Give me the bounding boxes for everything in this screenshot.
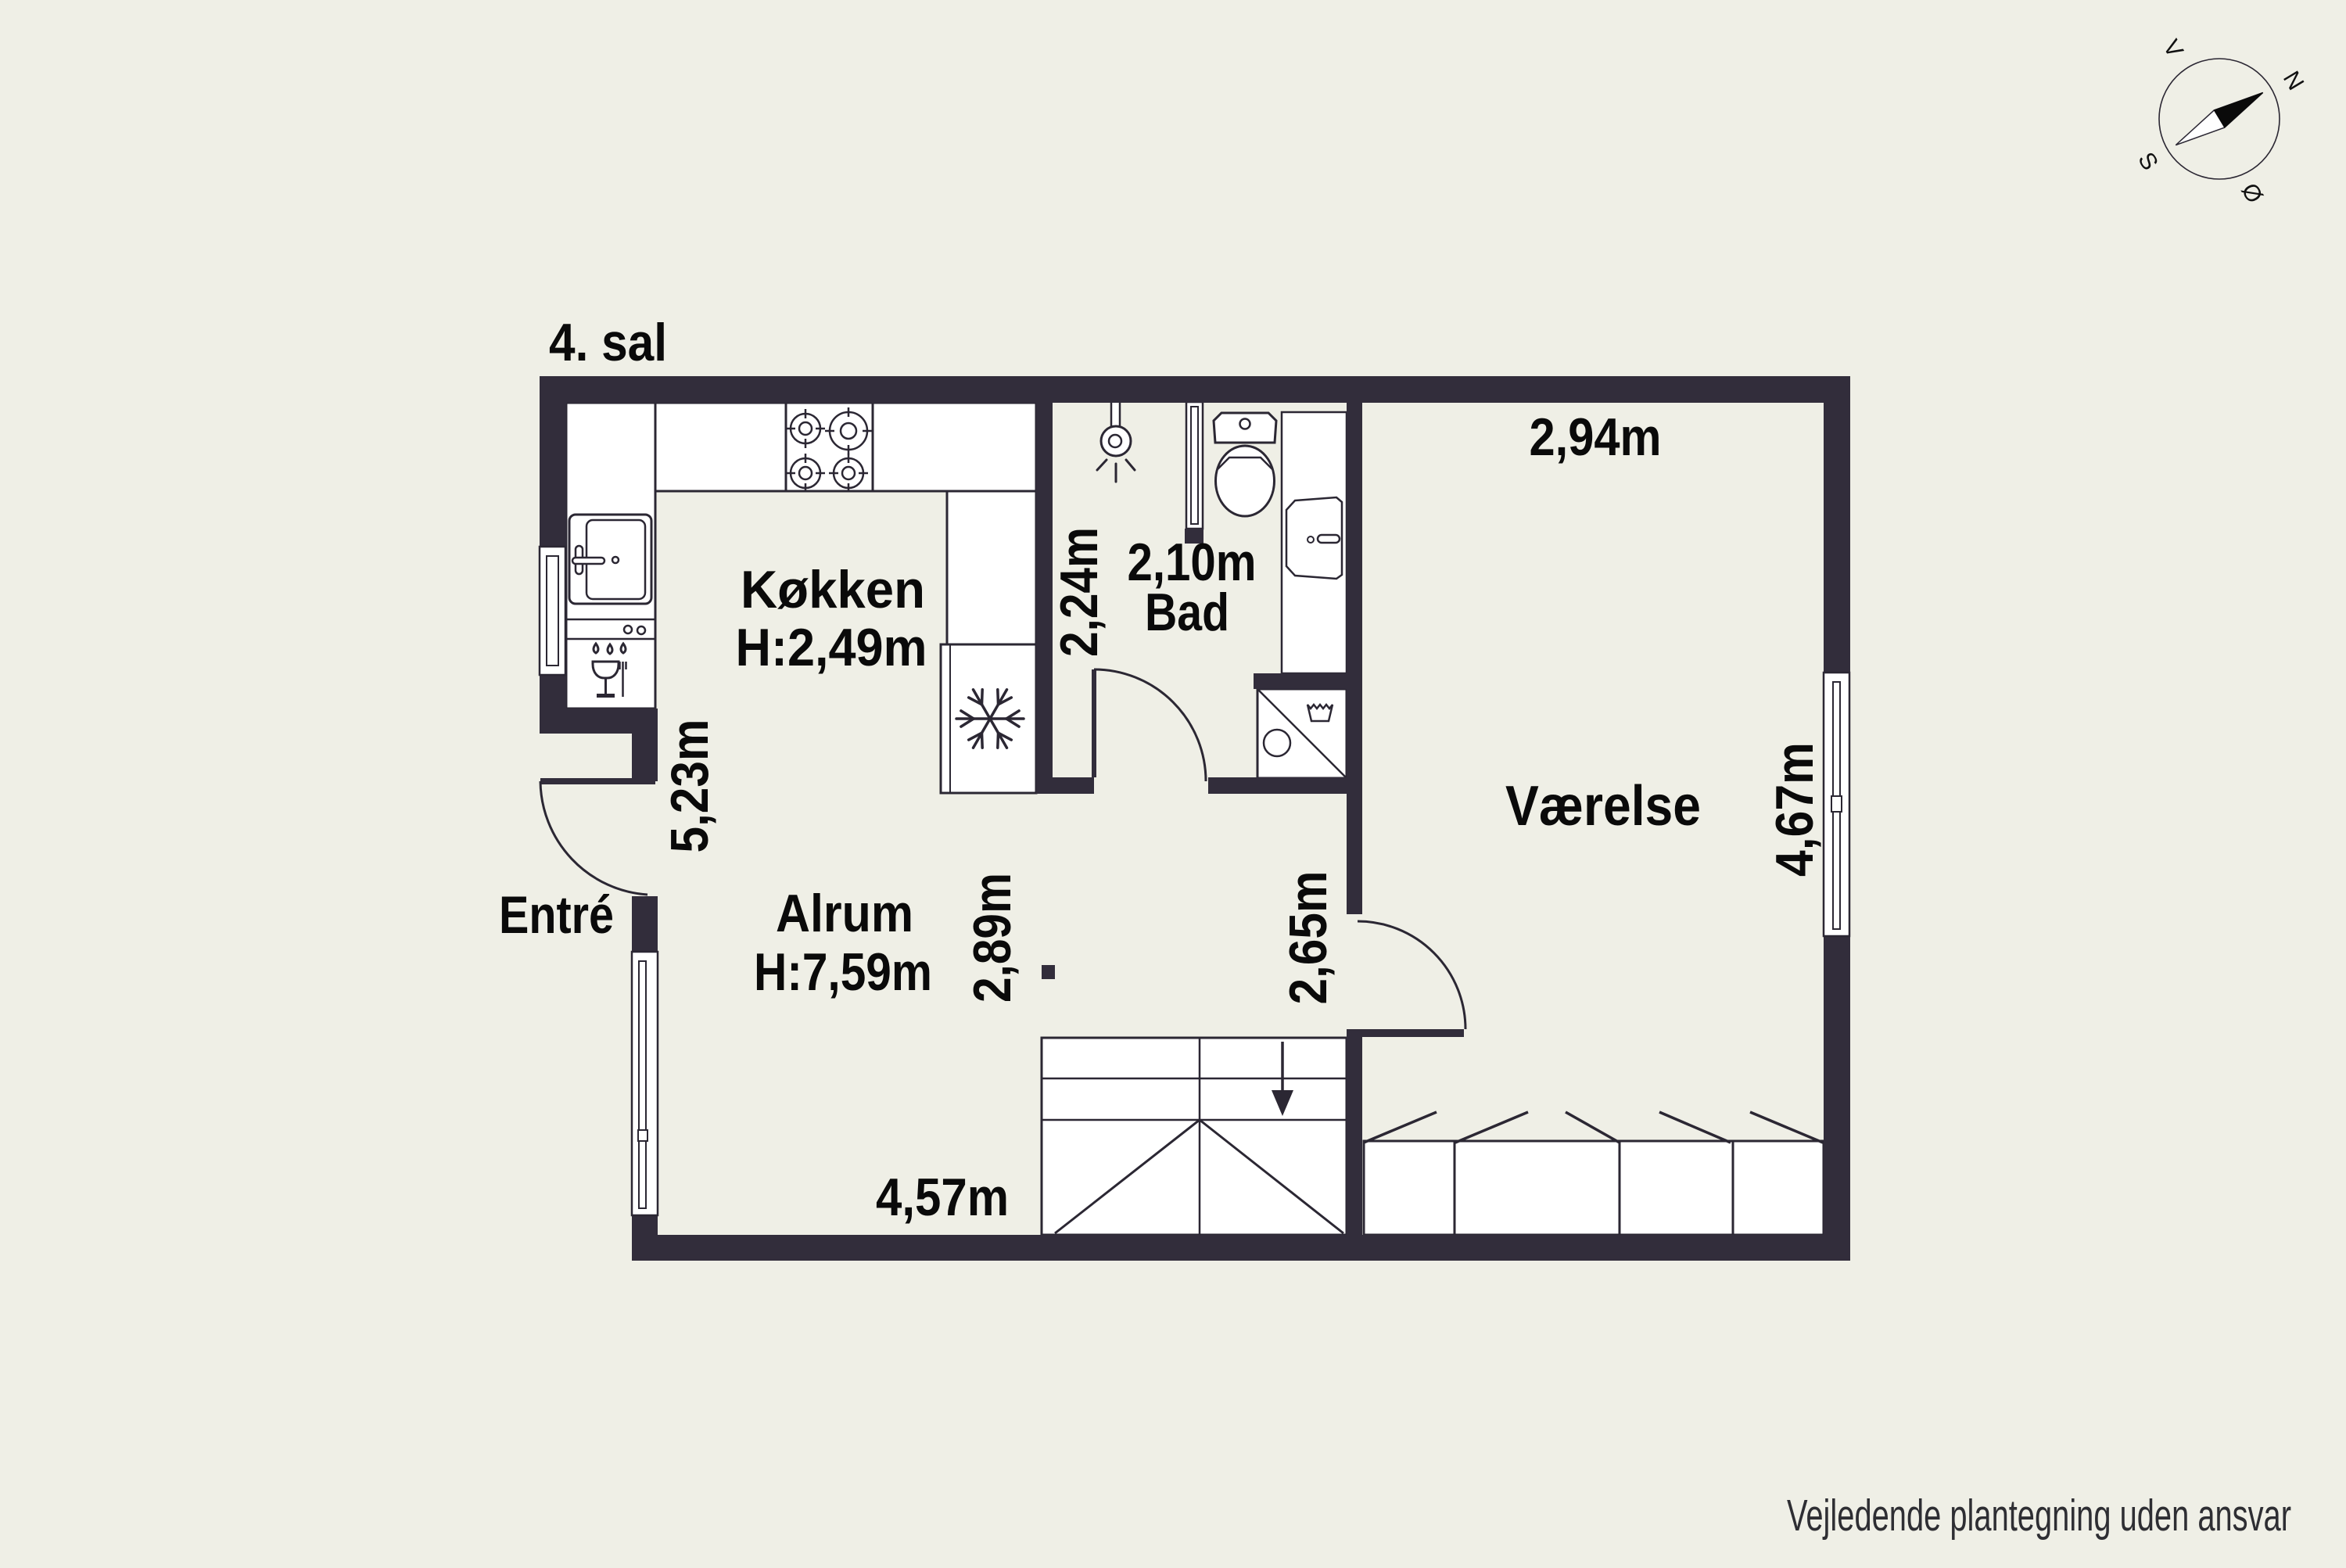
svg-text:4,67m: 4,67m (1765, 742, 1824, 877)
svg-text:2,89m: 2,89m (963, 873, 1022, 1003)
svg-text:4,57m: 4,57m (876, 1168, 1009, 1227)
svg-text:H:7,59m: H:7,59m (754, 942, 932, 1002)
svg-text:Værelse: Værelse (1505, 775, 1701, 838)
svg-text:2,24m: 2,24m (1049, 527, 1109, 657)
svg-text:2,65m: 2,65m (1279, 871, 1338, 1005)
svg-text:4. sal: 4. sal (549, 313, 667, 372)
svg-text:Køkken: Køkken (741, 560, 925, 619)
svg-text:Bad: Bad (1145, 583, 1229, 642)
svg-text:2,94m: 2,94m (1530, 407, 1662, 467)
svg-text:Vejledende plantegning uden an: Vejledende plantegning uden ansvar (1787, 1491, 2291, 1541)
svg-text:5,23m: 5,23m (660, 719, 719, 853)
svg-text:H:2,49m: H:2,49m (736, 618, 927, 677)
svg-text:Alrum: Alrum (776, 884, 913, 943)
svg-text:Entré: Entré (499, 885, 614, 945)
